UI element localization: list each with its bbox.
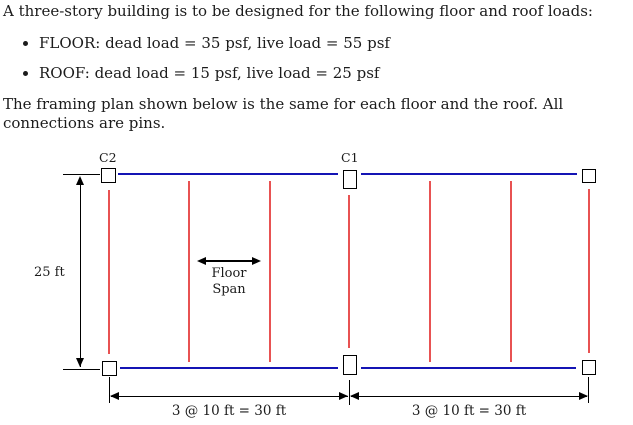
dim-tick-top: [63, 174, 100, 175]
joist-line: [429, 181, 431, 362]
joist-line: [108, 190, 110, 354]
floor-span-label-line2: Span: [195, 282, 263, 298]
framing-plan-diagram: C2 C1 25 ft Floor Sp: [0, 0, 633, 425]
joist-line: [188, 181, 190, 362]
floor-span-arrow-line: [203, 260, 255, 262]
column-square-bottom-left: [102, 361, 117, 376]
dim-extension-right: [588, 377, 589, 403]
joist-line: [588, 189, 590, 353]
girder-top-right: [361, 173, 577, 175]
bay-right-dim-label: 3 @ 10 ft = 30 ft: [369, 403, 569, 419]
bay-right-dim-line: [351, 396, 587, 397]
column-c2-label: C2: [99, 150, 117, 165]
joist-line: [269, 181, 271, 362]
column-c1-label: C1: [341, 150, 359, 165]
dim-tick-bottom: [63, 369, 100, 370]
bay-left-dim-label: 3 @ 10 ft = 30 ft: [129, 403, 329, 419]
height-dim-line: [80, 178, 81, 367]
arrowhead-right-icon: [252, 257, 261, 265]
girder-bottom-left: [120, 367, 338, 369]
arrowhead-up-icon: [76, 176, 84, 185]
arrowhead-left-icon: [197, 257, 206, 265]
arrowhead-left-icon: [110, 392, 119, 400]
arrowhead-right-icon: [339, 392, 348, 400]
column-square-bottom-middle: [343, 355, 357, 375]
height-dim-label: 25 ft: [34, 265, 65, 280]
girder-top-left: [118, 173, 338, 175]
arrowhead-down-icon: [76, 358, 84, 367]
column-square-c2: [101, 168, 116, 183]
page: A three-story building is to be designed…: [0, 0, 633, 425]
bay-left-dim-line: [111, 396, 348, 397]
joist-line: [348, 195, 350, 348]
floor-span-label: Floor Span: [195, 266, 263, 297]
joist-line: [510, 181, 512, 362]
arrowhead-right-icon: [579, 392, 588, 400]
column-square-bottom-right: [582, 360, 596, 375]
column-square-top-right: [582, 169, 596, 183]
girder-bottom-right: [361, 367, 576, 369]
floor-span-label-line1: Floor: [195, 266, 263, 282]
column-square-c1: [343, 170, 357, 189]
arrowhead-left-icon: [350, 392, 359, 400]
